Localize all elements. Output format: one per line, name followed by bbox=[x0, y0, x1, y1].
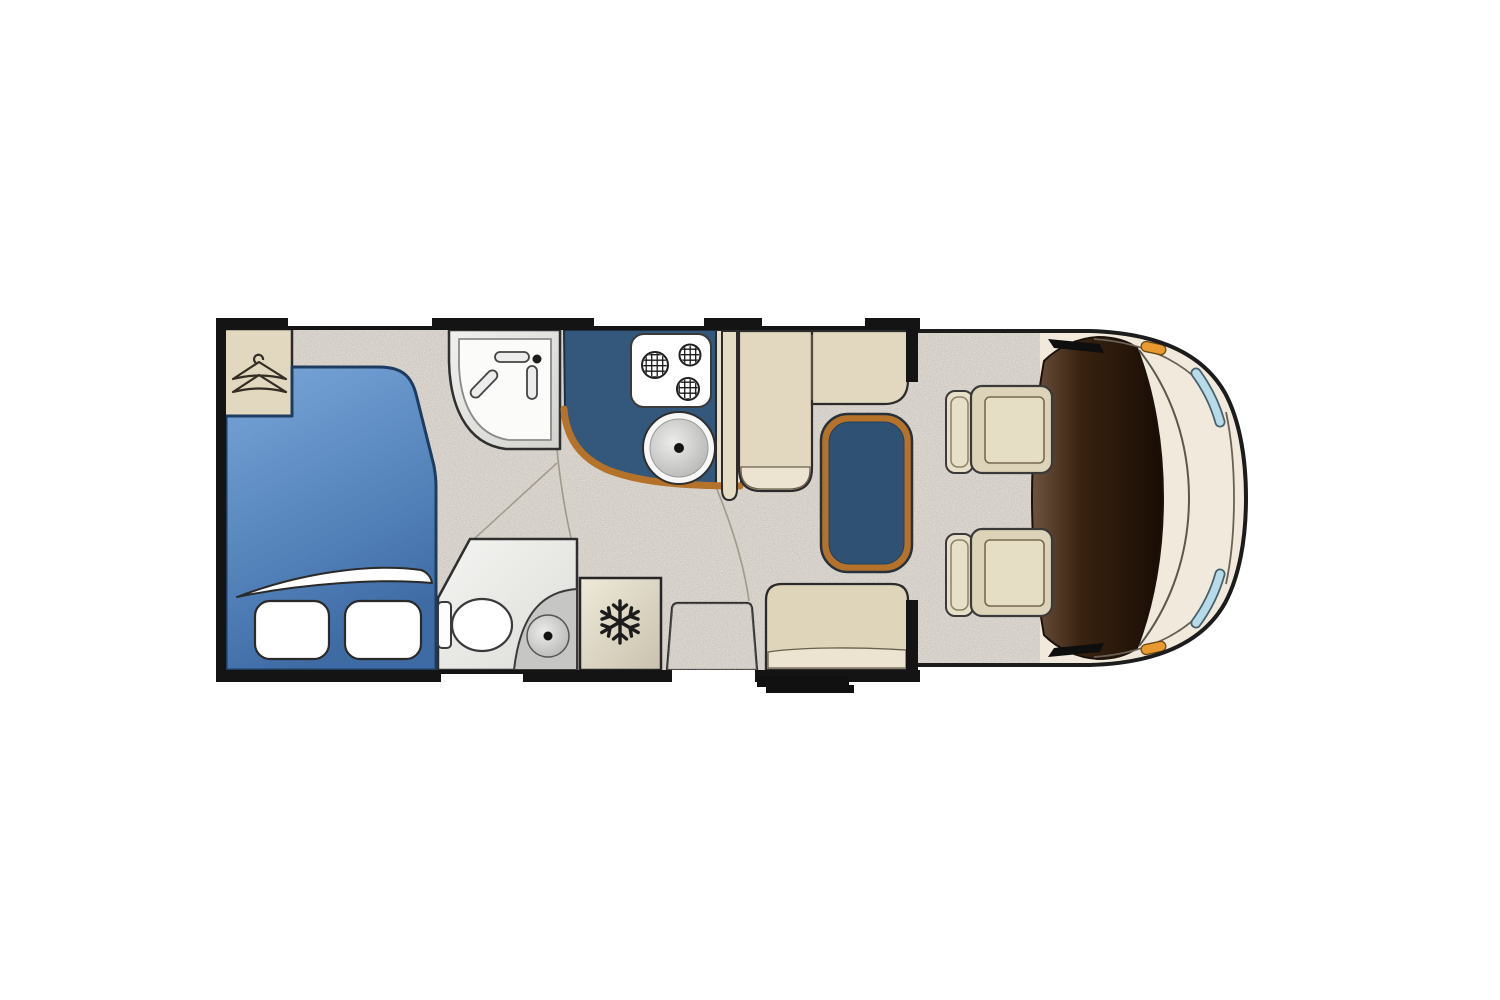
wardrobe-cabinet bbox=[224, 329, 292, 416]
seat-backrest bbox=[946, 534, 973, 616]
sink-drain-icon bbox=[544, 632, 553, 641]
cab bbox=[912, 331, 1246, 665]
dinette-bench-front bbox=[741, 467, 810, 489]
window-bedroom bbox=[288, 313, 432, 326]
toilet-cistern bbox=[438, 602, 451, 648]
wall-right-lower bbox=[906, 600, 918, 682]
pillow bbox=[345, 601, 421, 659]
window-dinette bbox=[762, 313, 865, 326]
wardrobe bbox=[224, 329, 292, 416]
dinette-side-backrest bbox=[722, 331, 737, 500]
hob-burners-icon bbox=[631, 334, 711, 407]
cab-seat-driver bbox=[946, 529, 1052, 616]
seat-backrest bbox=[946, 391, 973, 473]
seat-cushion-inner bbox=[985, 540, 1044, 606]
pillow bbox=[255, 601, 329, 659]
dinette-bench-corner bbox=[812, 331, 908, 404]
window-washroom bbox=[441, 674, 523, 687]
wall-left bbox=[216, 318, 226, 682]
seat-cushion-inner bbox=[985, 397, 1044, 463]
floorplan-diagram bbox=[0, 0, 1500, 1000]
window-kitchen bbox=[594, 313, 704, 326]
toilet-icon bbox=[438, 599, 512, 651]
burner bbox=[677, 378, 699, 400]
exterior-step-lower bbox=[766, 685, 854, 693]
rear-bench bbox=[766, 584, 908, 670]
kitchen bbox=[564, 330, 741, 486]
habitation bbox=[224, 328, 918, 672]
burner bbox=[680, 345, 701, 366]
kitchen-sink bbox=[643, 412, 715, 484]
washroom bbox=[438, 539, 577, 670]
page bbox=[0, 0, 1500, 1000]
cab-seat-passenger bbox=[946, 386, 1052, 473]
sink-drain-icon bbox=[674, 443, 684, 453]
toilet-bowl bbox=[452, 599, 512, 651]
entry-step-mat bbox=[667, 603, 757, 670]
refrigerator bbox=[580, 578, 661, 670]
table-top bbox=[829, 422, 904, 564]
sink-drain-icon bbox=[533, 355, 542, 364]
dinette-table bbox=[821, 414, 912, 572]
entry-door-opening bbox=[672, 670, 755, 684]
carpet-texture bbox=[667, 603, 757, 670]
bench-seat-front bbox=[768, 648, 906, 668]
wall-right-upper bbox=[906, 318, 918, 382]
burner bbox=[642, 352, 668, 378]
